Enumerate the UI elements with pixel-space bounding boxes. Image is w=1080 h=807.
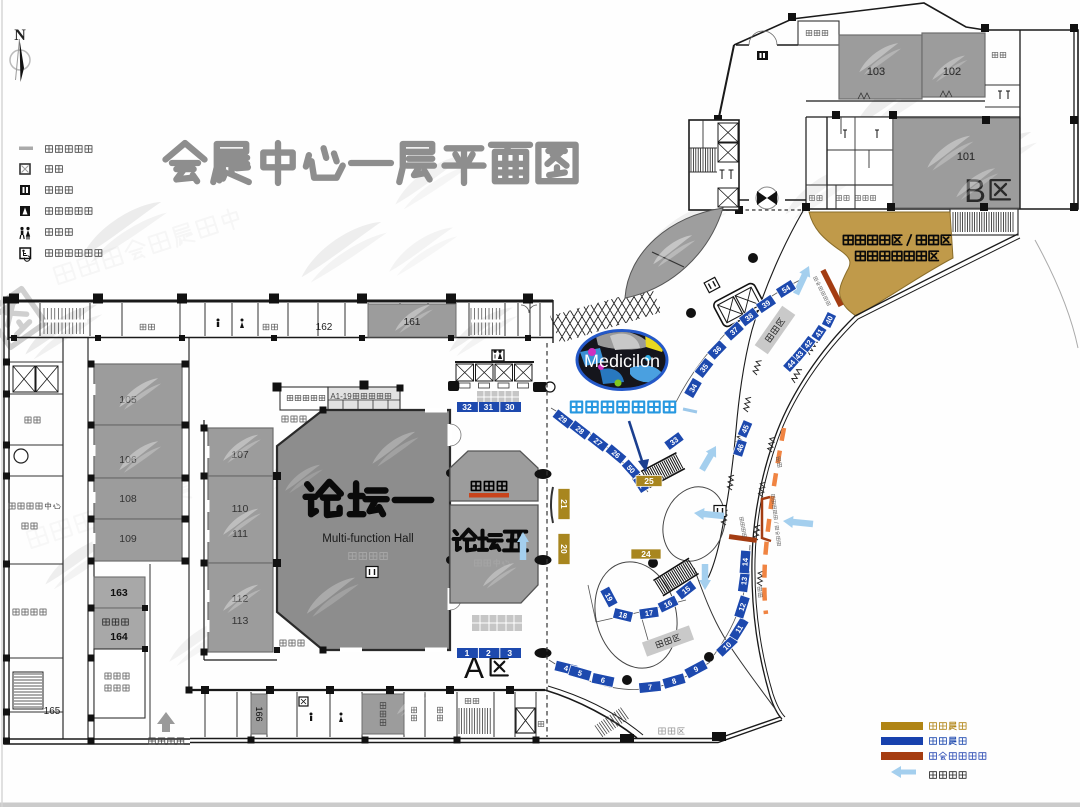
- svg-text:164: 164: [110, 631, 128, 643]
- svg-text:162: 162: [316, 322, 333, 333]
- svg-text:Multi-function Hall: Multi-function Hall: [322, 533, 413, 545]
- svg-text:163: 163: [110, 587, 128, 599]
- svg-text:113: 113: [232, 615, 249, 627]
- svg-text:108: 108: [119, 493, 137, 505]
- svg-text:161: 161: [404, 317, 421, 328]
- svg-text:Medicilon: Medicilon: [584, 351, 660, 371]
- svg-text:17: 17: [644, 608, 654, 618]
- svg-text:3: 3: [507, 648, 512, 658]
- svg-text:166: 166: [254, 706, 264, 721]
- svg-text:2: 2: [486, 648, 491, 658]
- svg-text:1: 1: [465, 648, 470, 658]
- svg-text:25: 25: [644, 476, 654, 486]
- svg-text:14: 14: [740, 557, 750, 567]
- svg-text:109: 109: [119, 533, 137, 545]
- svg-text:31: 31: [484, 402, 494, 412]
- svg-text:165: 165: [44, 706, 61, 717]
- svg-text:13: 13: [739, 576, 749, 586]
- svg-text:30: 30: [505, 402, 515, 412]
- svg-text:21: 21: [559, 499, 569, 509]
- svg-text:20: 20: [559, 544, 569, 554]
- svg-text:103: 103: [867, 66, 885, 78]
- svg-text:24: 24: [641, 549, 651, 559]
- svg-text:N: N: [14, 27, 26, 44]
- svg-text:102: 102: [943, 66, 961, 78]
- svg-text:32: 32: [462, 402, 472, 412]
- svg-text:101: 101: [957, 151, 975, 163]
